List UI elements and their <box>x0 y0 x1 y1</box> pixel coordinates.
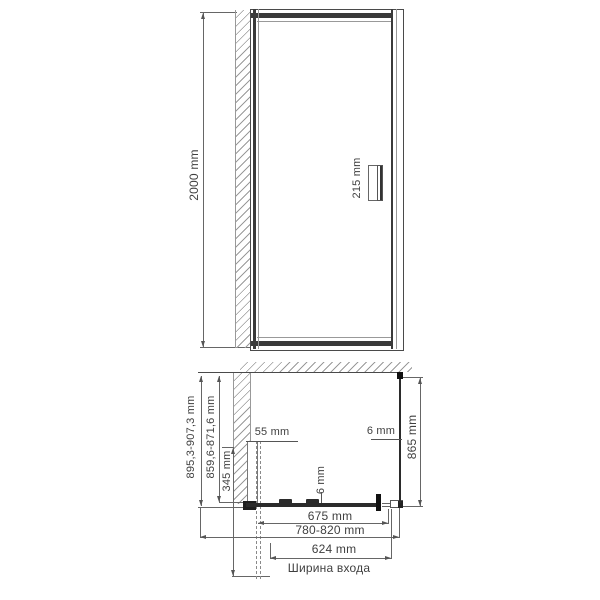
door-handle-bar <box>380 166 382 200</box>
technical-drawing: 2000 mm 215 mm 895,3-907,3 mm <box>0 0 600 600</box>
dim-345-bottom-tick <box>232 576 270 577</box>
door-glass-width-label: 675 mm <box>308 509 353 523</box>
dim-675-arrow-right <box>382 521 388 525</box>
dim-glass-depth-arrow-up <box>217 376 221 382</box>
dim-2000-top-tick <box>200 12 237 13</box>
dim-345-line <box>233 448 234 576</box>
dim-675-right-ext <box>388 509 389 524</box>
profile-adjust-dashed-line-2 <box>260 441 261 579</box>
side-glass-thickness-leader <box>371 439 402 440</box>
wall-profile-dimension-label: 55 mm <box>255 426 290 438</box>
side-panel-depth-label: 865 mm <box>405 415 419 460</box>
dim-total-depth-arrow-down <box>199 500 203 506</box>
dim-glass-depth-line <box>219 376 220 502</box>
dim-55-leader <box>246 441 298 442</box>
glass-top-edge <box>257 21 392 22</box>
frame-right-inner-line <box>396 9 397 349</box>
door-glass-thickness-leader <box>321 492 322 503</box>
door-knob-plan <box>376 494 381 511</box>
dim-624-arrow-left <box>270 556 276 560</box>
dim-780-right-ext <box>399 508 400 538</box>
dim-780-left-ext <box>200 508 201 538</box>
dim-total-depth-arrow-up <box>199 376 203 382</box>
glass-depth-dimension-label: 859,6-871,6 mm <box>205 396 217 479</box>
front-height-dimension-label: 2000 mm <box>187 149 201 200</box>
frame-left-profile <box>253 9 256 349</box>
frame-bottom-bar <box>251 341 392 346</box>
door-glass-right-edge <box>391 9 393 349</box>
dim-865-line <box>420 378 421 506</box>
dim-865-arrow-down <box>418 500 422 506</box>
side-panel-glass <box>399 373 401 503</box>
dim-624-right-ext <box>391 509 392 559</box>
door-clamp-1 <box>279 499 292 504</box>
dim-675-arrow-left <box>258 521 264 525</box>
handle-dimension-label: 215 mm <box>351 158 363 199</box>
dim-total-depth-line <box>201 376 202 506</box>
dim-780-arrow-right <box>393 535 399 539</box>
plan-top-wall-line <box>198 372 403 373</box>
dim-624-arrow-right <box>385 556 391 560</box>
door-clamp-2 <box>306 499 319 504</box>
dim-865-bottom-tick <box>403 506 423 507</box>
frame-left-inner-line <box>258 9 259 349</box>
dim-624-line <box>270 558 391 559</box>
dim-2000-line <box>203 13 204 347</box>
side-glass-thickness-label: 6 mm <box>367 425 395 437</box>
dim-865-arrow-up <box>418 378 422 384</box>
dim-780-arrow-left <box>200 535 206 539</box>
entry-width-dimension-label: 624 mm <box>312 542 357 556</box>
dim-215-line <box>368 165 369 201</box>
door-width-range-label: 780-820 mm <box>295 523 364 537</box>
dim-2000-arrow-down <box>201 341 205 347</box>
door-swing-dimension-label: 345 mm <box>221 451 233 492</box>
plan-top-wall-hatch <box>240 362 412 372</box>
glass-bottom-edge <box>257 337 392 338</box>
entry-width-caption: Ширина входа <box>288 561 370 575</box>
profile-adjust-dashed-line-1 <box>256 441 257 579</box>
front-wall-hatch <box>235 10 250 348</box>
total-depth-dimension-label: 895,3-907,3 mm <box>185 396 197 479</box>
dim-780-line <box>200 537 399 538</box>
frame-top-bar <box>251 13 392 18</box>
door-glass-thickness-label: 6 mm <box>315 466 327 494</box>
dim-2000-arrow-up <box>201 13 205 19</box>
